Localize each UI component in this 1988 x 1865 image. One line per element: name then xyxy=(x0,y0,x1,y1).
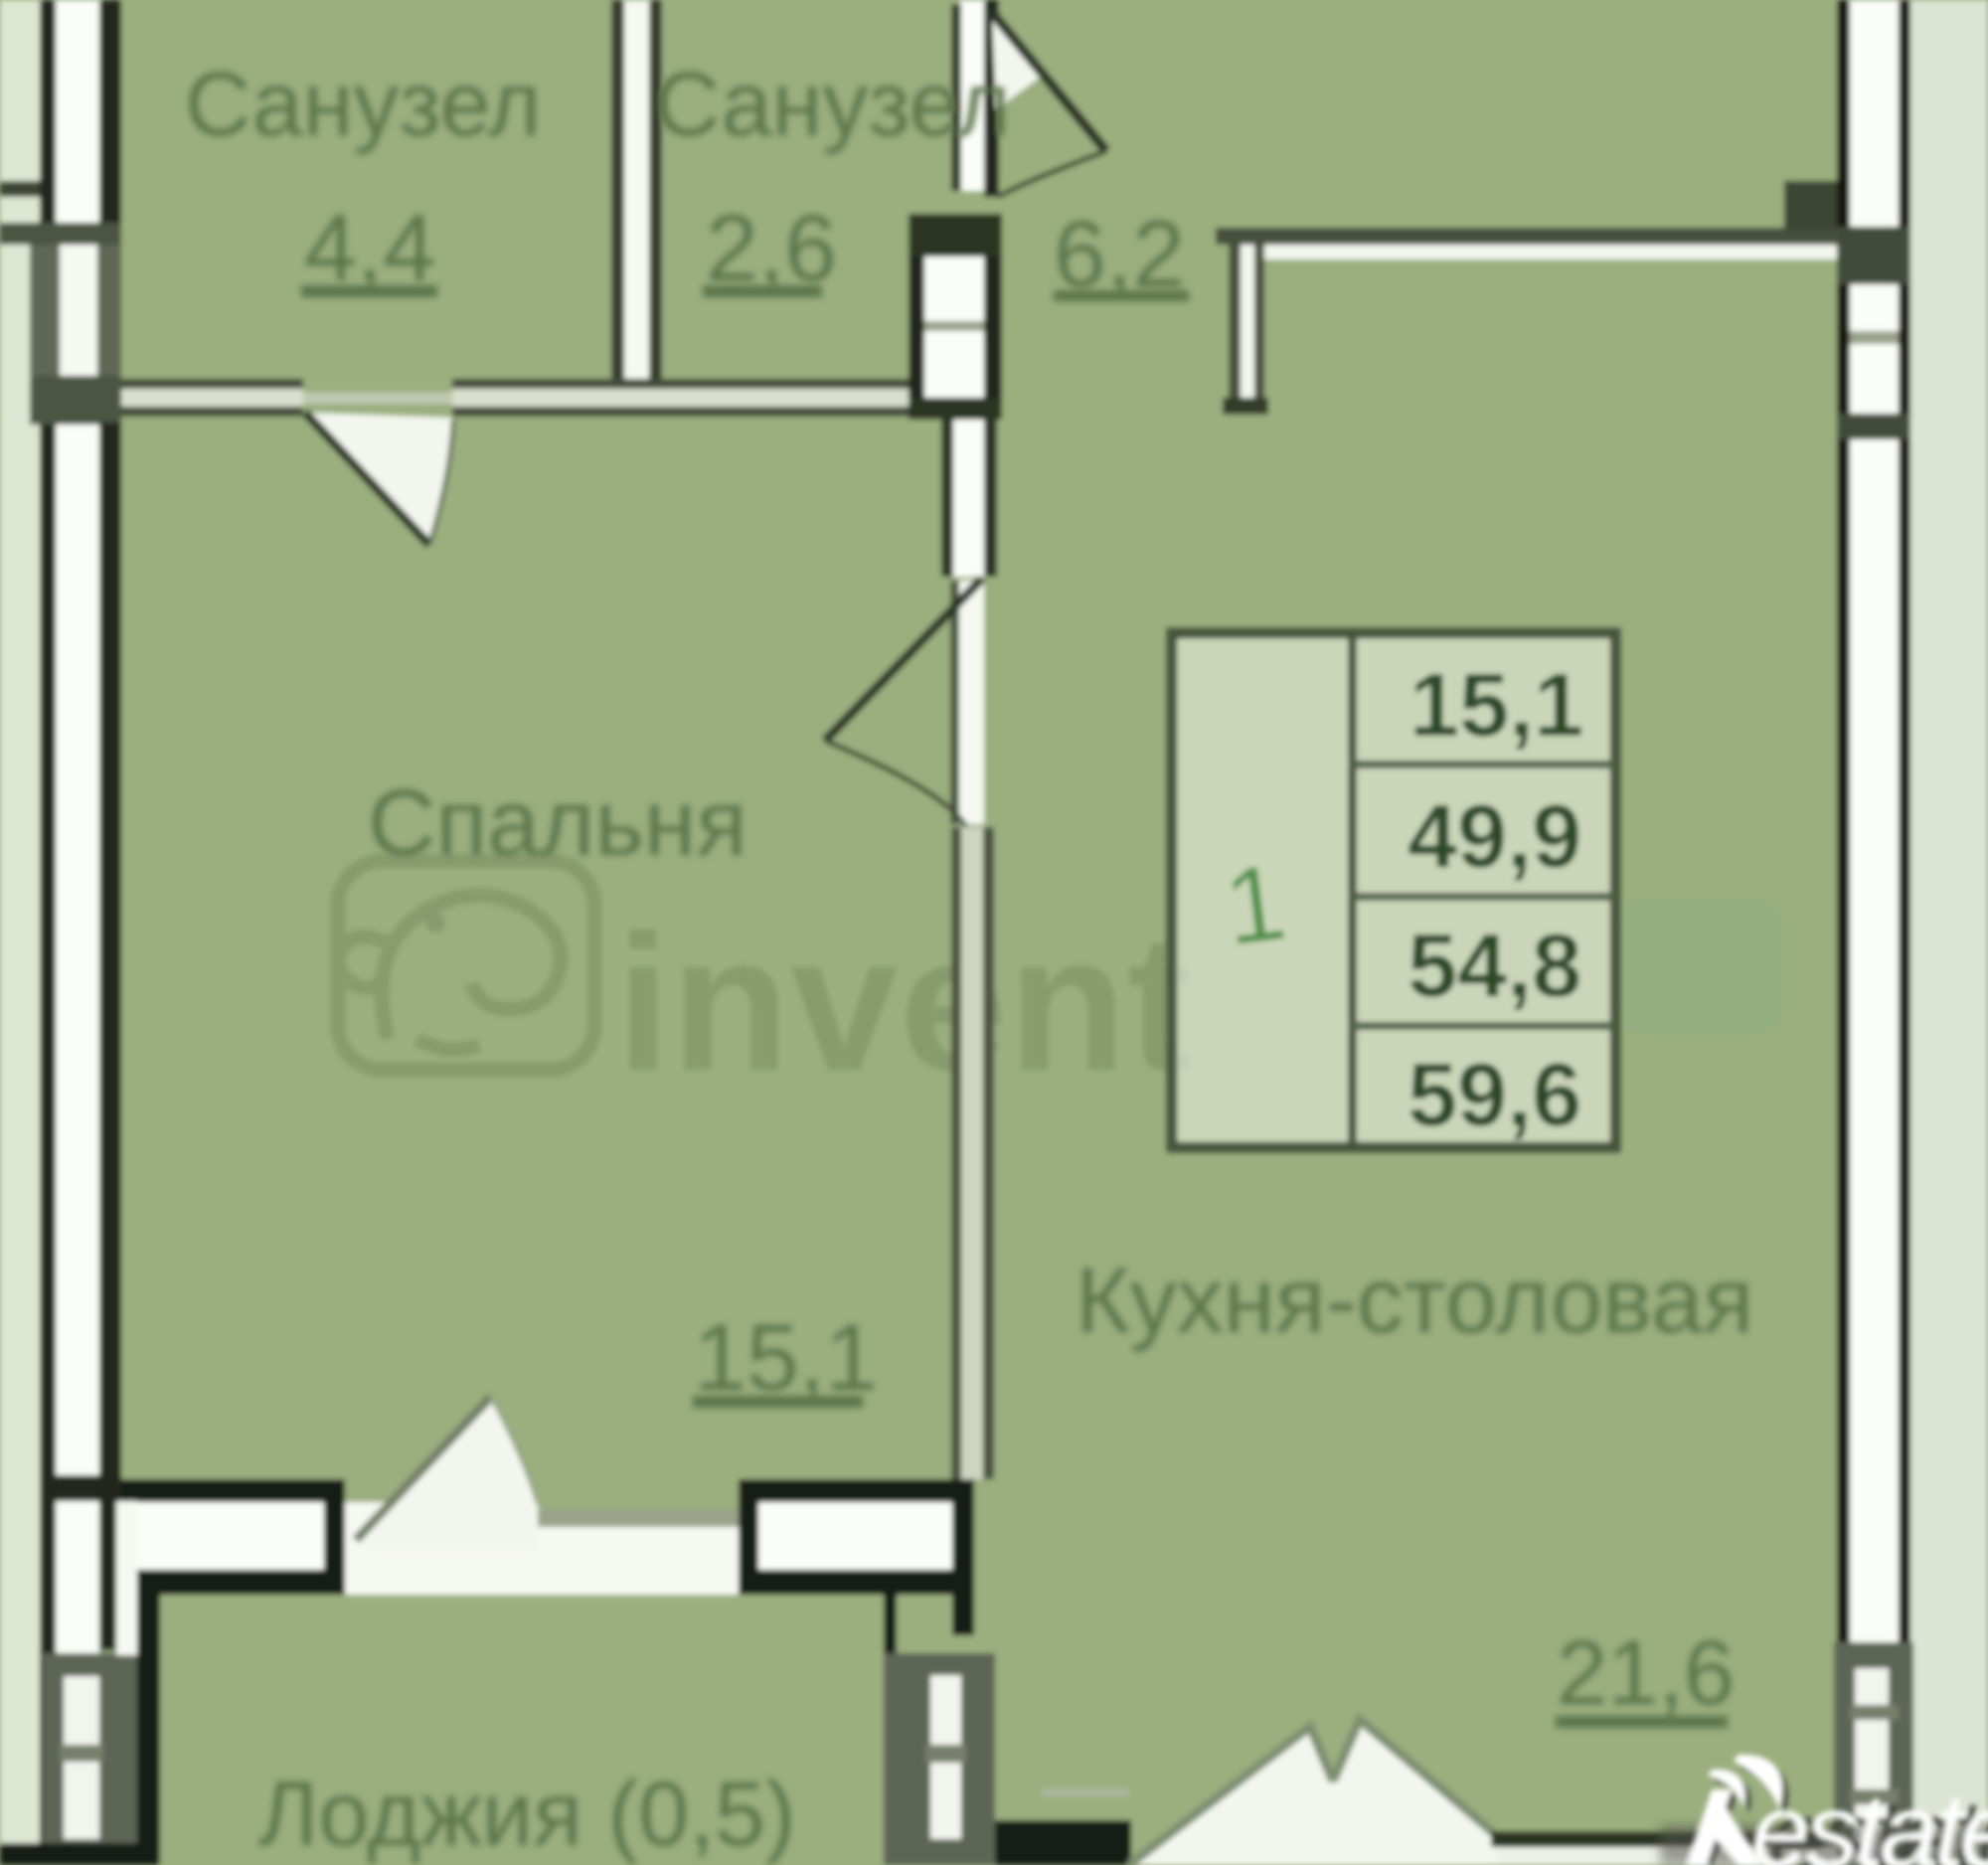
svg-text:Кухня-столовая: Кухня-столовая xyxy=(1076,1248,1753,1352)
svg-text:21,6: 21,6 xyxy=(1557,1622,1735,1724)
svg-text:15,1: 15,1 xyxy=(1409,656,1583,756)
svg-text:49,9: 49,9 xyxy=(1408,787,1581,887)
svg-text:54,8: 54,8 xyxy=(1408,917,1581,1016)
svg-text:Спальня: Спальня xyxy=(368,770,747,876)
svg-text:Санузел: Санузел xyxy=(654,54,1010,155)
svg-text:59,6: 59,6 xyxy=(1408,1046,1581,1145)
svg-text:15,1: 15,1 xyxy=(694,1305,878,1411)
svg-text:Санузел: Санузел xyxy=(185,54,541,155)
svg-text:invent: invent xyxy=(616,895,1193,1111)
svg-text:Лоджия (0,5): Лоджия (0,5) xyxy=(258,1764,796,1865)
